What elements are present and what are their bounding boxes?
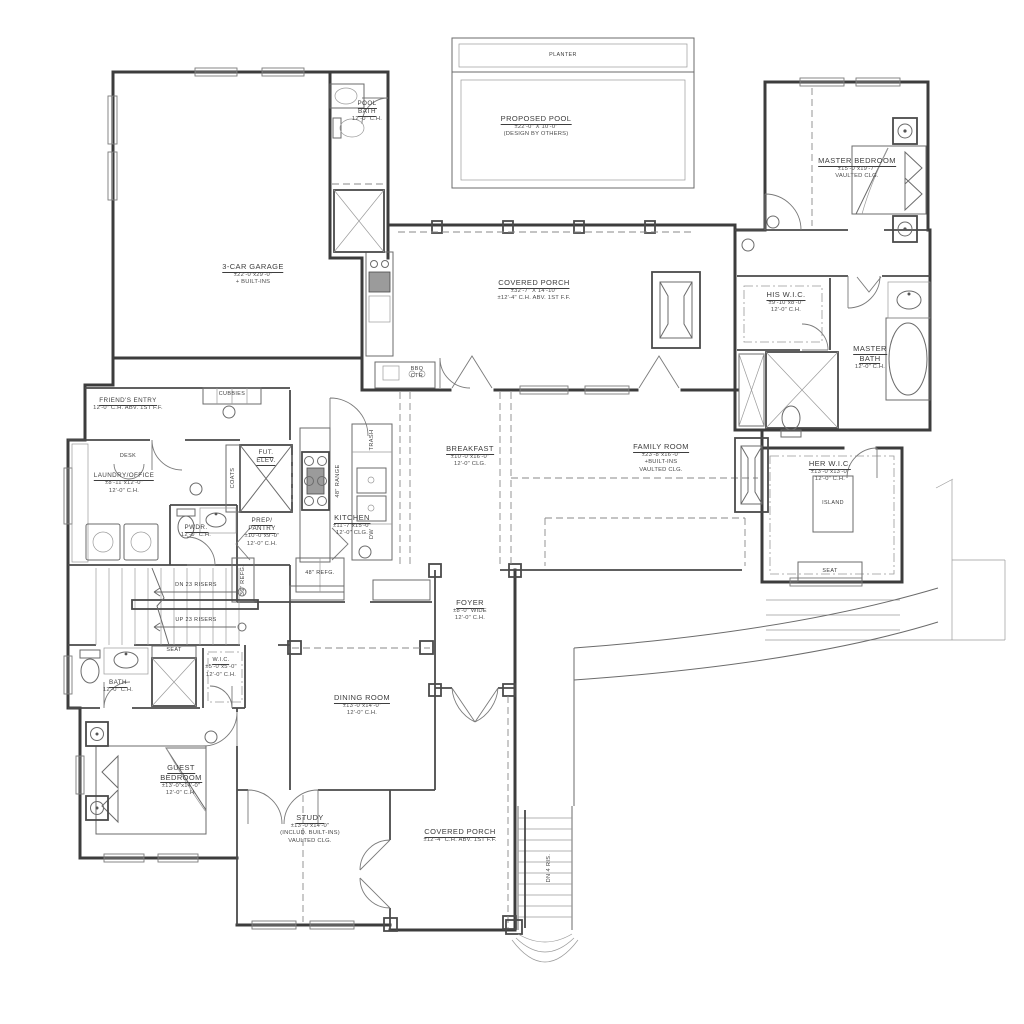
room-label-covered-porch-top: COVERED PORCH ±32'-7" X 14'-10" ±12'-4" … [497,278,570,303]
room-label-master-bath: MASTER BATH 12'-0" C.H. [853,344,887,371]
window-icon [64,68,900,929]
shower-icon [334,190,384,252]
label-refg-36: 36" REFG. [240,565,246,595]
stair-arrow-dn [154,588,236,596]
room-label-master-bedroom: MASTER BEDROOM ±15'-0"x19'-7" VAULTED CL… [818,156,896,181]
shower-icon [152,646,196,706]
tub-icon [886,318,930,400]
room-label-kitchen: KITCHEN ±11'-7"x15'-0" 12'-0" CLG. [333,513,371,538]
room-label-guest-bedroom: GUEST BEDROOM ±13'-0"x14'-0" 12'-0" C.H. [160,763,202,798]
buffet-cabinet [373,580,430,600]
windows [64,68,900,929]
porch-columns [432,221,655,233]
room-label-pool-bath: POOL BATH 12'-0" C.H. [352,100,382,124]
room-label-friends-entry: FRIEND'S ENTRY 12'-0" C.H. ABV. 1ST F.F. [93,397,163,413]
range-icon [302,452,329,510]
room-label-pwdr: PWDR. 12'-0" C.H. [181,524,211,540]
bbq-counter [375,362,435,388]
label-range: 48" RANGE [335,464,341,497]
stair-arrow-up [154,623,236,631]
shower-icon [766,352,838,428]
fireplace-icon [652,272,700,348]
label-stairs-dn: DN 23 RISERS [175,582,217,589]
room-label-wic2: W.I.C. ±5'-0"x5'-0" 12'-0" C.H. [205,657,237,679]
room-label-proposed-pool: PROPOSED POOL ±22'-0" X 10'-0" (DESIGN B… [501,114,572,139]
linen-closet [739,354,764,426]
label-island: ISLAND [822,500,844,507]
label-cubbies: CUBBIES [219,391,245,398]
room-label-study: STUDY ±13'-0"x14'-0" (INCLUD. BUILT-INS)… [280,813,340,845]
driveway-curves [574,588,938,806]
sink-icon [104,648,148,674]
room-label-family-room: FAMILY ROOM ±23'-8"x16'-0" +BUILT-INS VA… [633,442,689,474]
main-staircase [96,568,258,645]
laundry-fixtures [72,444,158,562]
room-label-bath2: BATH 12'-0" C.H. [103,679,133,695]
label-bbq-ctr: BBQ CTR [411,366,424,380]
room-label-fut-elev: FUT. ELEV. [256,449,275,465]
room-label-her-wic: HER W.I.C. ±13'-0"x13'-0" 12'-0" C.H. [809,459,851,484]
label-stairs-up: UP 23 RISERS [175,617,216,624]
exterior-walls [68,72,930,930]
room-label-foyer: FOYER ±8'-0" WIDE 12'-0" C.H. [453,598,487,623]
bed-post-icon [86,722,108,820]
room-label-dining: DINING ROOM ±13'-0"x14'-0" 12'-0" C.H. [334,693,390,718]
exterior-staircase [506,806,578,962]
keynote-circles [190,216,779,743]
room-label-garage: 3-CAR GARAGE ±22'-0"x29'-0" + BUILT-INS [222,262,283,287]
room-label-planter: PLANTER [549,52,577,59]
room-label-breakfast: BREAKFAST ±10'-0"x16'-0" 12'-0" CLG. [446,444,494,469]
label-coats: COATS [230,468,236,489]
toilet-icon [781,406,801,437]
label-trash: TRASH [369,430,375,451]
patio-steps [765,479,1005,640]
room-label-prep-pantry: PREP/ PANTRY ±10'-0"x9'-0" 12'-0" C.H. [245,517,280,548]
room-label-covered-porch-bottom: COVERED PORCH ±12'-4" C.H. ABV. 1ST F.F. [423,827,496,844]
label-refg-48: 48" REFG. [305,570,334,577]
label-dw: DW [369,529,375,539]
label-seat-her-wic: SEAT [822,568,837,575]
ceiling-break-lines [208,88,894,928]
dryer-icon [124,524,158,560]
washer-icon [86,524,120,560]
stair-break-line [152,568,169,645]
floor-plan-sheet: PLANTER PROPOSED POOL ±22'-0" X 10'-0" (… [0,0,1024,1024]
room-label-laundry-office: LAUNDRY/OFFICE ±8'-11"x12'-0" 12'-0" C.H… [94,472,154,495]
label-seat-bench: SEAT [166,647,181,654]
label-desk: DESK [120,453,136,460]
counter-cabinet [290,586,344,600]
floor-plan-drawing [0,0,1024,1024]
utility-closet [366,252,393,356]
bath2-fixtures [80,646,196,706]
sink-icon [888,282,930,318]
pool-outline [452,72,694,188]
her-wic-fixtures [798,476,862,582]
room-label-his-wic: HIS W.I.C. ±9'-10"x8'-0" 12'-0" C.H. [766,290,805,315]
toilet-icon [80,650,100,683]
label-dn-4-risers: DN 4 RIS. [546,854,552,883]
